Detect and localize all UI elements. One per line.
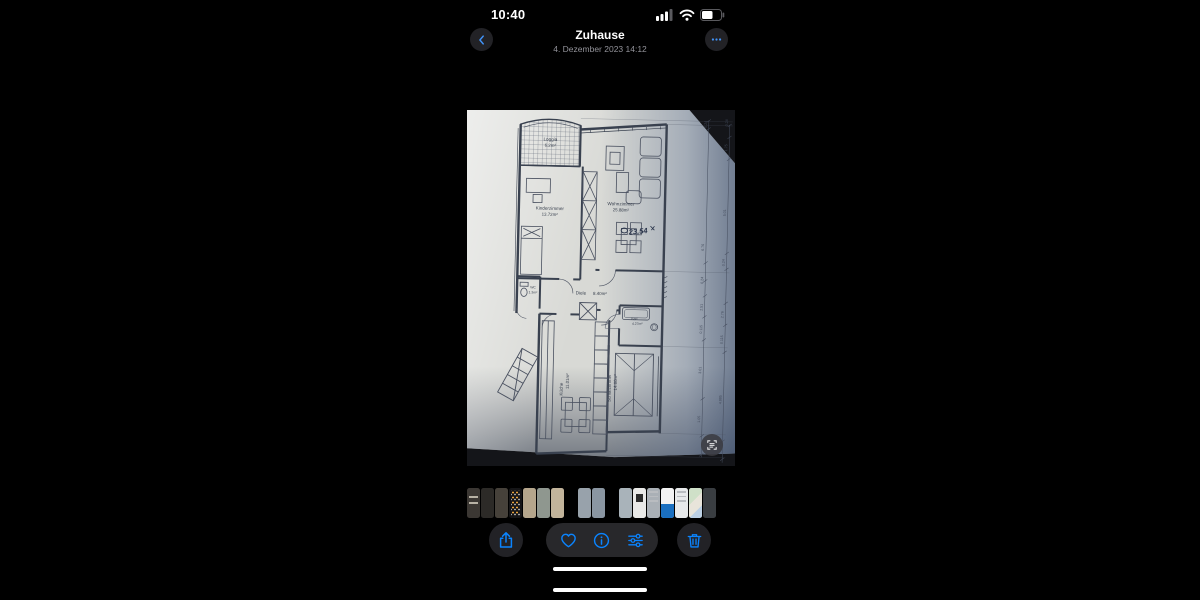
dimension-chain-inner: 0.246.760.242.510.1153.011.05 — [697, 121, 708, 423]
dimension-label: 5.01 — [723, 209, 727, 216]
info-icon — [592, 531, 611, 550]
dimension-label: 0.24 — [700, 277, 704, 284]
room-label-bad: Bad — [631, 317, 637, 321]
dimension-label: 1.75 — [724, 144, 728, 151]
room-label-wc: WC — [530, 285, 536, 289]
dimension-label: 3.01 — [698, 367, 702, 374]
sliders-icon — [626, 531, 645, 550]
thumbnail[interactable] — [592, 488, 605, 518]
wifi-icon — [679, 9, 695, 21]
toolbar-pill — [546, 523, 658, 557]
thumbnail-gap — [565, 488, 577, 518]
room-area-bad: 4.27m² — [632, 322, 644, 326]
phone-screen: 10:40 Zu — [461, 0, 739, 600]
favorite-button[interactable] — [556, 527, 582, 553]
dimension-label: 6.76 — [701, 244, 705, 251]
floor-plan-drawing: Loggia 6.2m² — [467, 110, 735, 466]
live-text-icon — [705, 438, 719, 452]
status-time: 10:40 — [491, 7, 525, 22]
thumbnail[interactable] — [509, 488, 522, 518]
ellipsis-icon — [710, 33, 723, 46]
thumbnail[interactable] — [661, 488, 674, 518]
room-label-diele: Diele — [576, 290, 587, 295]
room-area-kueche: 11.01m² — [565, 373, 570, 389]
thumbnail[interactable] — [467, 488, 480, 518]
dimension-label: 4.885 — [718, 395, 722, 404]
room-area-wc: 1.3m² — [529, 290, 539, 294]
home-indicator[interactable] — [553, 588, 647, 592]
cellular-signal-icon — [656, 9, 674, 21]
balcony-railing — [498, 348, 538, 400]
thumbnail[interactable] — [537, 488, 550, 518]
thumbnail[interactable] — [481, 488, 494, 518]
thumbnail[interactable] — [495, 488, 508, 518]
drag-bar[interactable] — [553, 567, 647, 571]
room-area-loggia: 6.2m² — [545, 143, 557, 148]
dimension-label: 0.115 — [720, 335, 724, 344]
room-label-loggia: Loggia — [543, 137, 557, 142]
battery-icon — [700, 9, 725, 21]
dimension-label: 2.51 — [700, 304, 704, 311]
room-area-kinderzimmer: 13.72m² — [542, 212, 559, 217]
delete-button[interactable] — [677, 523, 711, 557]
thumbnail[interactable] — [578, 488, 591, 518]
dimension-label: 1.05 — [697, 416, 701, 423]
status-icons — [656, 9, 725, 21]
trash-icon — [685, 531, 704, 550]
dimension-label: 0.115 — [699, 325, 703, 334]
share-button[interactable] — [489, 523, 523, 557]
dimension-chain-outer: 0.241.755.010.242.760.1154.885 — [718, 119, 728, 404]
room-label-wohnzimmer: Wohnzimmer — [607, 201, 635, 207]
thumbnail[interactable] — [675, 488, 688, 518]
room-label-kueche: Küche — [559, 382, 564, 396]
thumbnail[interactable] — [551, 488, 564, 518]
room-area-diele: 8.40m² — [593, 291, 607, 296]
thumbnail[interactable] — [523, 488, 536, 518]
thumbnail-gap — [606, 488, 618, 518]
thumbnail-strip[interactable] — [467, 488, 716, 518]
thumbnail[interactable] — [703, 488, 716, 518]
thumbnail[interactable] — [619, 488, 632, 518]
dimension-label: 0.24 — [725, 119, 729, 126]
room-area-wohnzimmer: 25.88m² — [613, 207, 630, 212]
dimension-label: 0.24 — [722, 259, 726, 266]
heart-icon — [559, 531, 578, 550]
dimension-label: 0.24 — [704, 121, 708, 128]
live-text-button[interactable] — [701, 434, 723, 456]
nav-title-block: Zuhause 4. Dezember 2023 14:12 — [461, 28, 739, 54]
room-label-kinderzimmer: Kinderzimmer — [536, 205, 565, 211]
share-icon — [496, 530, 516, 550]
room-area-schlafzimmer: 14.60m² — [613, 374, 618, 391]
thumbnail[interactable] — [633, 488, 646, 518]
photo-floor-plan[interactable]: Loggia 6.2m² — [467, 110, 735, 466]
photo-date: 4. Dezember 2023 14:12 — [461, 44, 739, 54]
page-title: Zuhause — [461, 28, 739, 42]
more-button[interactable] — [705, 28, 728, 51]
dimension-label: 2.76 — [720, 311, 724, 318]
info-button[interactable] — [589, 527, 615, 553]
thumbnail[interactable] — [647, 488, 660, 518]
screenshot-stage: 10:40 Zu — [0, 0, 1200, 600]
thumbnail[interactable] — [689, 488, 702, 518]
handwritten-annotation: 23,54 — [627, 226, 648, 237]
adjust-button[interactable] — [622, 527, 648, 553]
